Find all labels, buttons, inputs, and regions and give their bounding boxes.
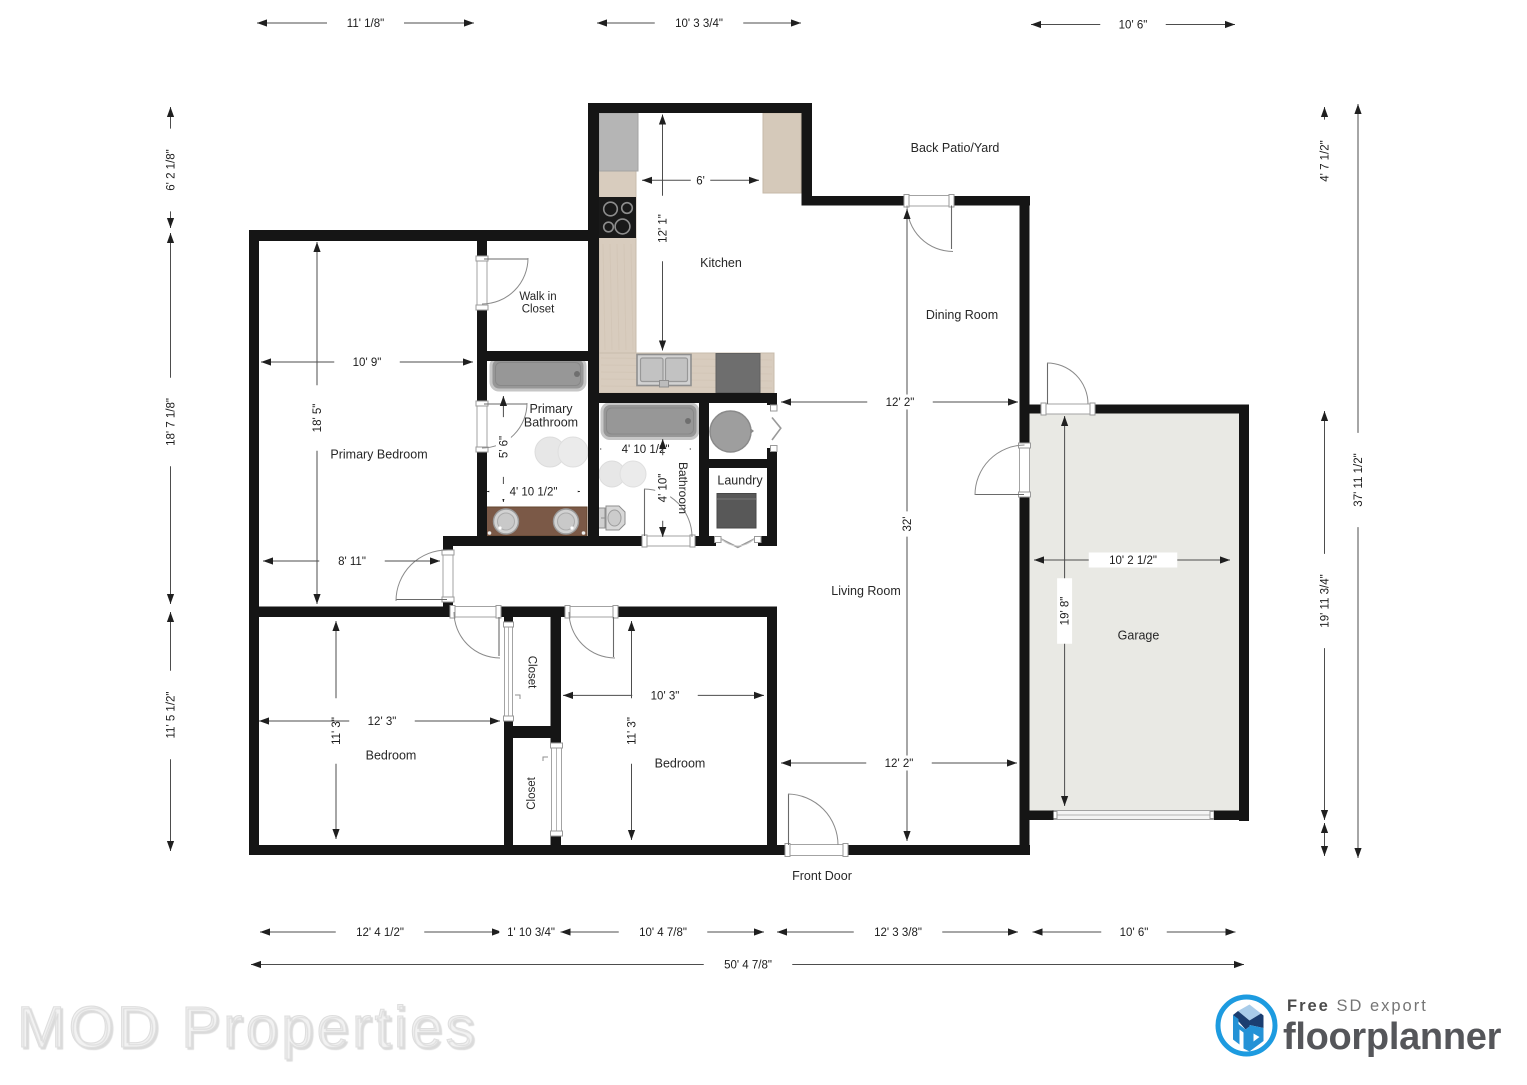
svg-text:6' 2 1/8": 6' 2 1/8" (166, 149, 178, 190)
svg-text:Bedroom: Bedroom (655, 757, 706, 771)
svg-text:4' 10 1/2": 4' 10 1/2" (510, 487, 558, 499)
svg-text:Walk in: Walk in (519, 291, 556, 303)
svg-text:8' 11": 8' 11" (338, 556, 366, 568)
svg-text:Bathroom: Bathroom (524, 416, 578, 430)
svg-text:Garage: Garage (1118, 629, 1160, 643)
svg-text:Primary Bedroom: Primary Bedroom (330, 448, 427, 462)
svg-text:19' 11 3/4": 19' 11 3/4" (1320, 574, 1332, 627)
svg-text:12' 2": 12' 2" (886, 397, 915, 409)
svg-text:12' 1": 12' 1" (658, 214, 670, 243)
svg-text:Front Door: Front Door (792, 869, 852, 883)
svg-text:4' 7 1/2": 4' 7 1/2" (1320, 140, 1332, 181)
svg-text:32': 32' (902, 517, 914, 532)
svg-text:Closet: Closet (525, 656, 537, 689)
svg-text:Kitchen: Kitchen (700, 256, 742, 270)
svg-text:19' 8": 19' 8" (1060, 597, 1072, 626)
svg-text:10' 2 1/2": 10' 2 1/2" (1109, 555, 1157, 567)
svg-text:floorplanner: floorplanner (1283, 1016, 1502, 1058)
svg-text:MOD Properties: MOD Properties (17, 995, 478, 1060)
svg-text:10' 3": 10' 3" (651, 690, 680, 702)
svg-text:50' 4 7/8": 50' 4 7/8" (724, 960, 772, 972)
svg-text:10' 4 7/8": 10' 4 7/8" (639, 927, 687, 939)
svg-text:18' 7 1/8": 18' 7 1/8" (166, 398, 178, 446)
svg-text:Dining Room: Dining Room (926, 308, 998, 322)
svg-text:12' 3 3/8": 12' 3 3/8" (874, 927, 922, 939)
svg-text:Laundry: Laundry (717, 474, 763, 488)
svg-text:Back Patio/Yard: Back Patio/Yard (911, 141, 1000, 155)
svg-text:11' 5 1/2": 11' 5 1/2" (166, 692, 178, 739)
svg-text:Bedroom: Bedroom (366, 749, 417, 763)
svg-text:12' 3": 12' 3" (368, 716, 397, 728)
svg-text:11' 1/8": 11' 1/8" (347, 18, 384, 30)
svg-text:Bathroom: Bathroom (676, 462, 690, 514)
svg-text:10' 6": 10' 6" (1119, 20, 1148, 32)
svg-text:11' 3": 11' 3" (627, 717, 639, 745)
svg-text:Closet: Closet (526, 776, 538, 809)
svg-text:4' 10": 4' 10" (658, 474, 670, 503)
svg-text:37' 11 1/2": 37' 11 1/2" (1353, 453, 1365, 506)
svg-text:Free SD export: Free SD export (1287, 997, 1428, 1015)
svg-text:10' 6": 10' 6" (1120, 927, 1149, 939)
svg-text:18' 5": 18' 5" (312, 404, 324, 433)
svg-text:10' 3 3/4": 10' 3 3/4" (675, 18, 723, 30)
svg-text:Primary: Primary (529, 402, 573, 416)
svg-text:5' 6": 5' 6" (498, 436, 510, 458)
svg-text:Closet: Closet (522, 304, 555, 316)
svg-text:12' 2": 12' 2" (885, 758, 914, 770)
svg-text:6': 6' (696, 175, 705, 187)
svg-text:Living Room: Living Room (831, 584, 900, 598)
svg-text:1' 10 3/4": 1' 10 3/4" (507, 927, 555, 939)
svg-text:12' 4 1/2": 12' 4 1/2" (356, 927, 404, 939)
svg-text:10' 9": 10' 9" (353, 357, 382, 369)
